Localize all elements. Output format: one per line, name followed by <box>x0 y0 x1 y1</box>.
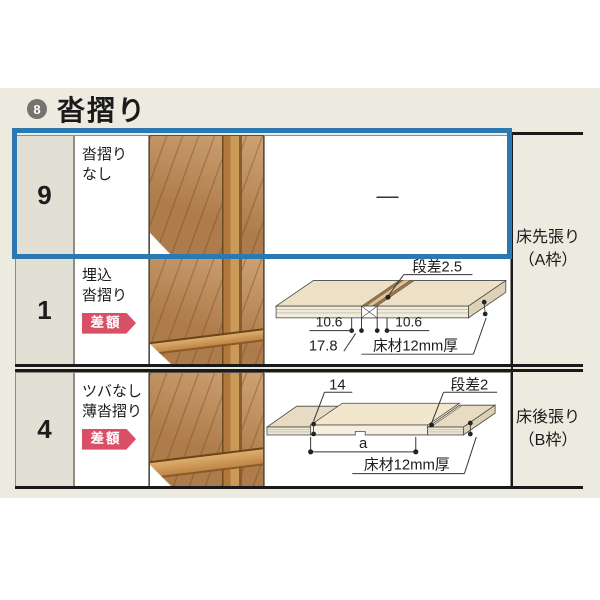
row-label: 埋込 沓摺り 差額 <box>74 256 149 365</box>
option-row-4[interactable]: 4 ツバなし 薄沓摺り 差額 <box>15 372 511 487</box>
row-label-line2: 薄沓摺り <box>82 402 148 422</box>
section-number-badge: 8 <box>27 99 47 119</box>
product-photo <box>149 372 264 487</box>
photo-corner <box>150 373 263 486</box>
frame-type-b-line1: 床後張り <box>516 407 580 429</box>
label-dim-right: 10.6 <box>395 315 422 330</box>
label-dim-left: 14 <box>329 377 346 393</box>
section-divider-line <box>15 364 583 367</box>
row-label-line1: ツバなし <box>82 382 148 402</box>
table-bottom-border <box>15 486 583 489</box>
price-difference-badge: 差額 <box>82 429 136 450</box>
label-material: 床材12mm厚 <box>373 337 458 354</box>
label-step: 段差2 <box>450 376 488 393</box>
label-dim-total: 17.8 <box>309 338 338 354</box>
label-dim-left: 10.6 <box>316 315 343 330</box>
row-label-line2: 沓摺り <box>82 286 148 306</box>
thin-threshold-diagram: 14 段差2 a 床材12mm厚 <box>265 373 510 486</box>
frame-type-a-line1: 床先張り <box>516 227 580 249</box>
wood-floor-image <box>150 373 263 486</box>
product-photo <box>149 256 264 365</box>
wood-floor-image <box>150 257 263 364</box>
frame-type-b-line2: （B枠） <box>519 430 578 452</box>
frame-type-a-line2: （A枠） <box>519 250 578 272</box>
row-number: 4 <box>15 372 74 487</box>
label-step: 段差2.5 <box>412 259 462 276</box>
photo-corner <box>150 257 263 364</box>
embedded-threshold-diagram: 段差2.5 10.6 10.6 17.8 床材12mm厚 <box>265 257 510 364</box>
option-row-1[interactable]: 1 埋込 沓摺り 差額 <box>15 256 511 365</box>
row-number: 1 <box>15 256 74 365</box>
row-label-line1: 埋込 <box>82 266 148 286</box>
catalog-page: 8 沓摺り 9 沓摺り なし — 1 埋込 沓摺り 差額 <box>0 0 600 600</box>
label-span: a <box>359 436 368 452</box>
section-header: 8 沓摺り <box>27 93 147 125</box>
frame-type-a-label: 床先張り （A枠） <box>513 135 583 364</box>
frame-type-b-label: 床後張り （B枠） <box>513 372 583 487</box>
page-title: 沓摺り <box>57 89 147 129</box>
diagram-cell-thin: 14 段差2 a 床材12mm厚 <box>264 372 511 487</box>
selection-highlight <box>12 128 512 259</box>
diagram-cell-embedded: 段差2.5 10.6 10.6 17.8 床材12mm厚 <box>264 256 511 365</box>
row-label: ツバなし 薄沓摺り 差額 <box>74 372 149 487</box>
label-material: 床材12mm厚 <box>364 457 450 474</box>
price-difference-badge: 差額 <box>82 313 136 334</box>
